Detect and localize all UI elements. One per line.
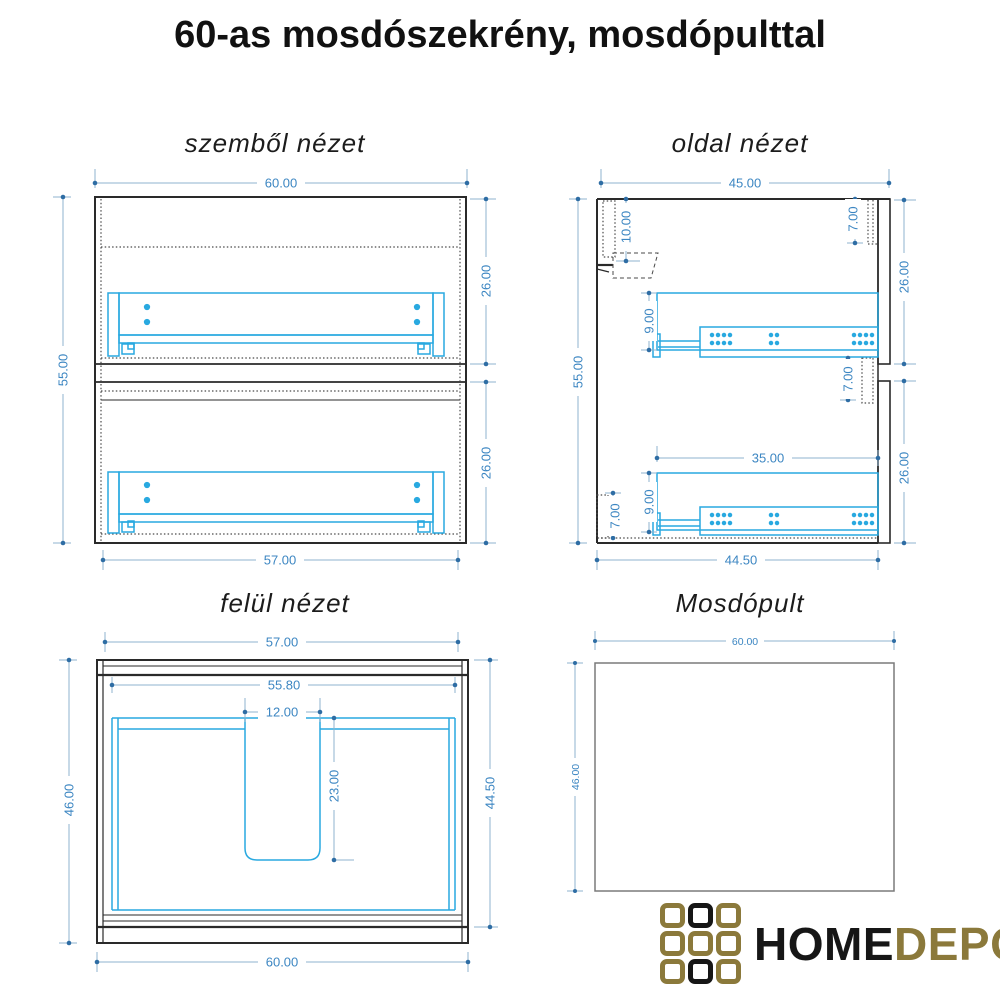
top-drawer-outline <box>112 718 455 910</box>
side-lower-drawer <box>653 473 878 535</box>
top-sink-cutout <box>245 718 320 860</box>
side-dim-depth-bottom: 44.50 <box>595 550 881 570</box>
logo-grid-cell <box>716 903 741 928</box>
side-lower-rail-screws <box>711 514 874 525</box>
homedepo-logo: HOMEDEPO <box>660 903 1000 984</box>
svg-text:7.00: 7.00 <box>841 366 856 391</box>
svg-text:46.00: 46.00 <box>570 764 582 790</box>
logo-grid-cell <box>660 959 685 984</box>
logo-grid-cell <box>660 931 685 956</box>
side-hidden-lines <box>597 200 878 538</box>
front-dim-width-bottom: 57.00 <box>101 550 461 570</box>
homedepo-logo-grid-icon <box>660 903 741 984</box>
svg-text:60.00: 60.00 <box>732 636 758 648</box>
counter-outline <box>595 663 894 891</box>
side-dim-rail-upper: 9.00 <box>641 291 657 353</box>
side-upper-rail-screws <box>711 334 874 345</box>
side-dim-drawer-upper: 26.00 <box>894 198 916 367</box>
front-view-title: szemből nézet <box>40 128 510 159</box>
front-lower-drawer <box>108 472 444 533</box>
svg-text:35.00: 35.00 <box>752 451 785 466</box>
svg-text:55.00: 55.00 <box>571 356 586 389</box>
top-cabinet-outline <box>97 660 468 943</box>
svg-text:44.50: 44.50 <box>725 553 758 568</box>
top-dim-width-top: 57.00 <box>103 632 461 652</box>
svg-text:57.00: 57.00 <box>266 635 299 650</box>
top-dim-depth-left: 46.00 <box>59 658 77 946</box>
side-dim-plinth: 7.00 <box>605 491 623 541</box>
svg-text:60.00: 60.00 <box>266 955 299 970</box>
front-cabinet-outline <box>95 197 466 543</box>
svg-text:44.50: 44.50 <box>483 777 498 810</box>
side-dim-drawer-depth: 35.00 <box>655 446 881 466</box>
logo-grid-cell <box>716 959 741 984</box>
front-hidden-lines <box>101 199 460 541</box>
side-dim-depth-top: 45.00 <box>599 169 892 191</box>
logo-text-depo: DEPO <box>894 918 1000 970</box>
svg-text:46.00: 46.00 <box>62 784 77 817</box>
svg-text:26.00: 26.00 <box>479 447 494 480</box>
logo-grid-cell <box>688 959 713 984</box>
logo-grid-cell <box>716 931 741 956</box>
top-dim-cutout-depth: 23.00 <box>326 716 354 863</box>
side-upper-drawer <box>653 293 878 357</box>
counter-dim-width-top: 60.00 <box>593 631 896 650</box>
svg-text:45.00: 45.00 <box>729 176 762 191</box>
front-dim-height-left: 55.00 <box>53 195 71 546</box>
logo-grid-cell <box>660 903 685 928</box>
side-dim-front-top-overlap: 7.00 <box>845 197 863 246</box>
front-view-drawing: 60.00 55.00 26.00 26.00 57.00 <box>40 160 550 580</box>
svg-text:55.80: 55.80 <box>268 678 301 693</box>
front-dim-drawer-lower: 26.00 <box>470 380 496 546</box>
svg-text:60.00: 60.00 <box>265 176 298 191</box>
logo-text-home: HOME <box>754 918 894 970</box>
front-dim-width-top: 60.00 <box>93 169 470 191</box>
side-view-title: oldal nézet <box>565 128 915 159</box>
counter-dim-depth-left: 46.00 <box>567 661 583 893</box>
side-dim-rail-lower: 9.00 <box>641 471 657 535</box>
svg-text:26.00: 26.00 <box>479 265 494 298</box>
logo-grid-cell <box>688 931 713 956</box>
side-dim-height-left: 55.00 <box>569 197 587 546</box>
top-dim-depth-right: 44.50 <box>474 658 498 930</box>
svg-text:7.00: 7.00 <box>846 206 861 231</box>
svg-text:23.00: 23.00 <box>327 770 342 803</box>
front-dim-drawer-upper: 26.00 <box>470 197 496 367</box>
top-dim-width-bottom: 60.00 <box>95 952 471 972</box>
side-view-drawing: 45.00 55.00 10.00 7.00 26.00 9.00 7.00 <box>565 160 1000 580</box>
svg-text:7.00: 7.00 <box>608 503 623 528</box>
svg-text:9.00: 9.00 <box>642 489 657 514</box>
svg-text:9.00: 9.00 <box>642 308 657 333</box>
page-title: 60-as mosdószekrény, mosdópulttal <box>0 14 1000 57</box>
front-upper-drawer <box>108 293 444 356</box>
logo-grid-cell <box>688 903 713 928</box>
side-dim-front-mid-gap: 7.00 <box>840 356 856 403</box>
svg-text:10.00: 10.00 <box>619 211 634 244</box>
svg-text:26.00: 26.00 <box>897 261 912 294</box>
svg-text:12.00: 12.00 <box>266 705 299 720</box>
svg-text:57.00: 57.00 <box>264 553 297 568</box>
svg-text:55.00: 55.00 <box>56 354 71 387</box>
side-dim-drawer-lower: 26.00 <box>894 379 916 546</box>
top-dim-inner-width: 55.80 <box>110 677 458 693</box>
homedepo-logo-text: HOMEDEPO <box>754 917 1000 971</box>
top-view-drawing: 57.00 55.80 12.00 23.00 46.00 44.50 60.0… <box>40 580 550 1000</box>
svg-text:26.00: 26.00 <box>897 452 912 485</box>
